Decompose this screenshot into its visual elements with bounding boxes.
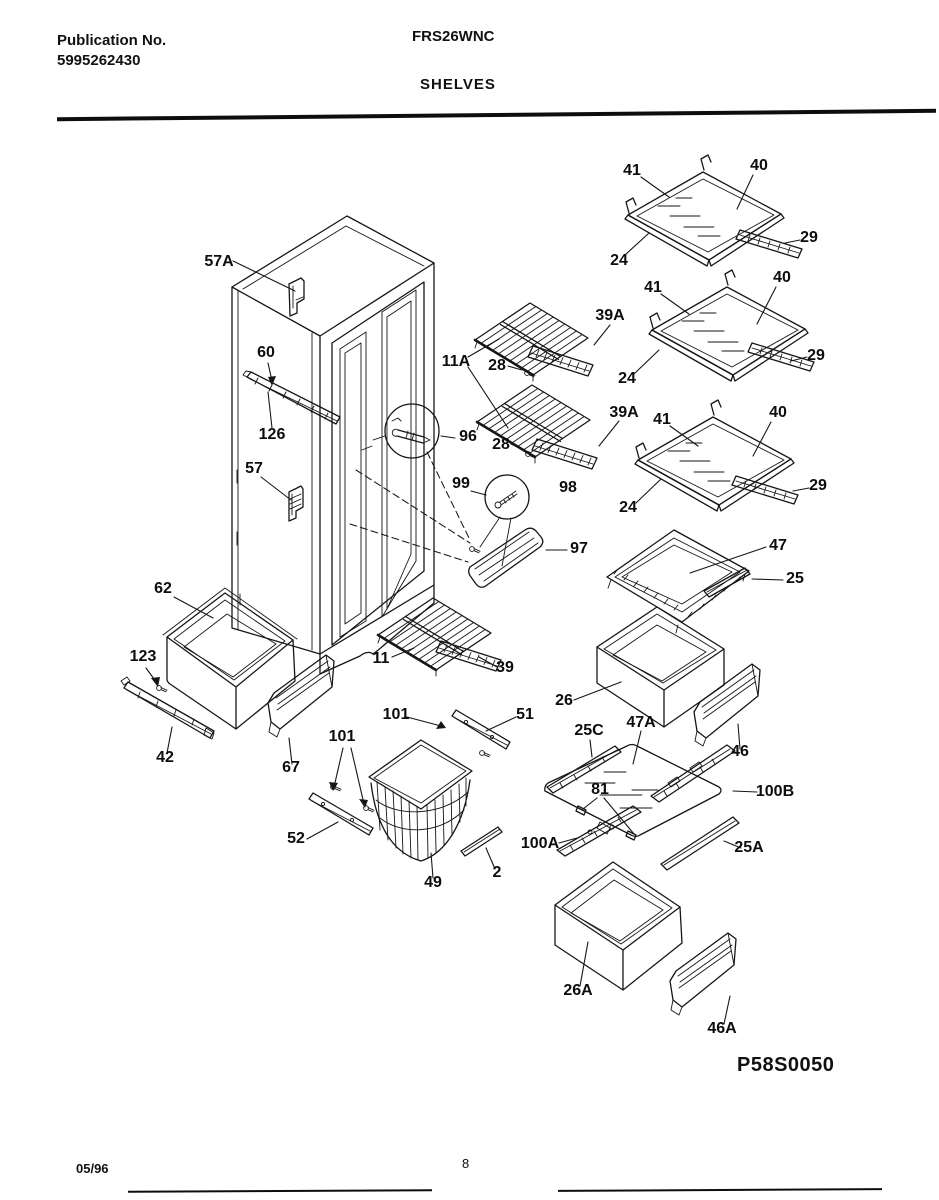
- rail-2: [461, 827, 502, 856]
- clips-81: [576, 806, 636, 840]
- shelf-trim-29-top: [736, 230, 802, 258]
- part-label-26: 26: [555, 692, 573, 709]
- part-label-99: 99: [452, 475, 470, 492]
- trim-25c: [547, 746, 621, 793]
- footer-page-number: 8: [462, 1156, 469, 1171]
- part-label-47A: 47A: [626, 714, 656, 731]
- glass-shelf-47a: [545, 745, 721, 837]
- rail-51: [452, 710, 510, 757]
- crisper-pan-26: [597, 607, 724, 727]
- exploded-diagram: 57A601265711A282839A39A96999897414024294…: [0, 0, 939, 1200]
- drawer-front-67: [268, 655, 334, 737]
- part-label-60: 60: [257, 344, 275, 361]
- wire-basket-49: [369, 740, 472, 861]
- cabinet: [232, 216, 434, 674]
- shelf-trim-29-middle: [748, 343, 814, 371]
- part-label-39A: 39A: [609, 404, 639, 421]
- part-label-29: 29: [809, 477, 827, 494]
- part-label-97: 97: [570, 540, 588, 557]
- drawer-62: [163, 588, 297, 729]
- freezer-pan-26a: [555, 862, 682, 990]
- part-label-51: 51: [516, 706, 534, 723]
- part-label-39A: 39A: [595, 307, 625, 324]
- part-label-29: 29: [800, 229, 818, 246]
- part-label-46: 46: [731, 743, 749, 760]
- part-label-25C: 25C: [574, 722, 604, 739]
- crisper-shelf-47: [607, 530, 749, 633]
- part-label-28: 28: [492, 436, 510, 453]
- part-label-126: 126: [259, 426, 286, 443]
- part-label-24: 24: [618, 370, 636, 387]
- rail-39a-lower: [532, 439, 597, 469]
- part-label-11A: 11A: [442, 353, 471, 370]
- part-label-40: 40: [769, 404, 787, 421]
- part-label-81: 81: [591, 781, 609, 798]
- leader-lines: [146, 175, 809, 1024]
- part-label-98: 98: [559, 479, 577, 496]
- clip-57: [289, 486, 303, 521]
- part-label-28: 28: [488, 357, 506, 374]
- deli-drawer-97: [469, 528, 543, 587]
- part-label-49: 49: [424, 874, 442, 891]
- part-label-40: 40: [773, 269, 791, 286]
- part-label-39: 39: [496, 659, 514, 676]
- part-label-25A: 25A: [734, 839, 764, 856]
- part-label-52: 52: [287, 830, 305, 847]
- part-label-25: 25: [786, 570, 804, 587]
- part-label-100A: 100A: [521, 835, 560, 852]
- part-label-101: 101: [329, 728, 356, 745]
- part-label-40: 40: [750, 157, 768, 174]
- rail-60: [243, 371, 340, 424]
- part-label-57A: 57A: [204, 253, 234, 270]
- part-label-29: 29: [807, 347, 825, 364]
- part-label-2: 2: [493, 864, 502, 881]
- part-label-26A: 26A: [563, 982, 593, 999]
- rail-42: [121, 677, 214, 739]
- glass-shelf-middle: [649, 270, 808, 381]
- part-label-41: 41: [644, 279, 662, 296]
- part-label-62: 62: [154, 580, 172, 597]
- parts-catalog-page: Publication No. 5995262430 FRS26WNC SHEL…: [0, 0, 939, 1200]
- part-label-41: 41: [623, 162, 641, 179]
- part-label-57: 57: [245, 460, 263, 477]
- part-label-42: 42: [156, 749, 174, 766]
- part-label-100B: 100B: [756, 783, 794, 800]
- part-label-47: 47: [769, 537, 787, 554]
- diagram-code: P58S0050: [737, 1054, 834, 1077]
- part-label-11: 11: [373, 650, 390, 667]
- part-label-101: 101: [383, 706, 410, 723]
- part-label-24: 24: [610, 252, 628, 269]
- detail-circle-96-shelf-pin: [385, 404, 439, 458]
- trim-25a: [661, 817, 739, 870]
- screw-123: [157, 686, 167, 692]
- detail-circle-99-screw: [485, 475, 529, 519]
- part-label-67: 67: [282, 759, 300, 776]
- footer-date: 05/96: [76, 1161, 109, 1176]
- clip-57a: [289, 278, 304, 316]
- drawer-front-46: [694, 664, 760, 746]
- part-label-123: 123: [130, 648, 157, 665]
- shelf-trim-25: [704, 568, 750, 597]
- part-label-41: 41: [653, 411, 671, 428]
- part-label-24: 24: [619, 499, 637, 516]
- part-label-46A: 46A: [707, 1020, 737, 1037]
- part-label-96: 96: [459, 428, 477, 445]
